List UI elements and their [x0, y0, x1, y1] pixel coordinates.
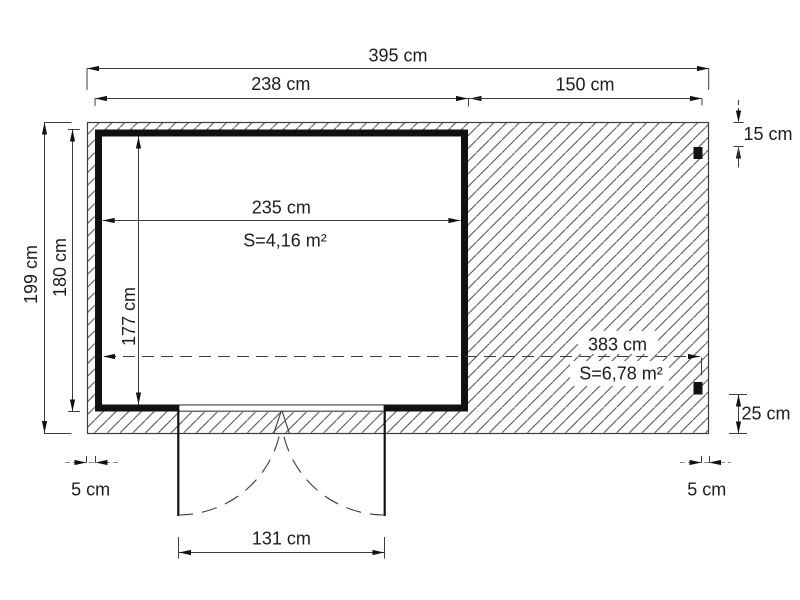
svg-text:S=6,78 m²: S=6,78 m²	[579, 364, 663, 384]
svg-text:238 cm: 238 cm	[251, 74, 310, 94]
svg-text:25 cm: 25 cm	[742, 404, 791, 424]
svg-text:383 cm: 383 cm	[588, 334, 647, 354]
svg-text:S=4,16 m²: S=4,16 m²	[243, 230, 327, 250]
svg-text:5 cm: 5 cm	[71, 480, 110, 500]
svg-text:180 cm: 180 cm	[50, 238, 70, 297]
svg-text:5 cm: 5 cm	[687, 479, 726, 499]
svg-text:150 cm: 150 cm	[555, 75, 614, 95]
svg-text:131 cm: 131 cm	[252, 528, 311, 548]
svg-text:199 cm: 199 cm	[21, 245, 41, 304]
svg-text:395 cm: 395 cm	[368, 46, 427, 66]
svg-text:177 cm: 177 cm	[119, 287, 139, 346]
svg-text:235 cm: 235 cm	[252, 197, 311, 217]
svg-text:15 cm: 15 cm	[744, 124, 793, 144]
